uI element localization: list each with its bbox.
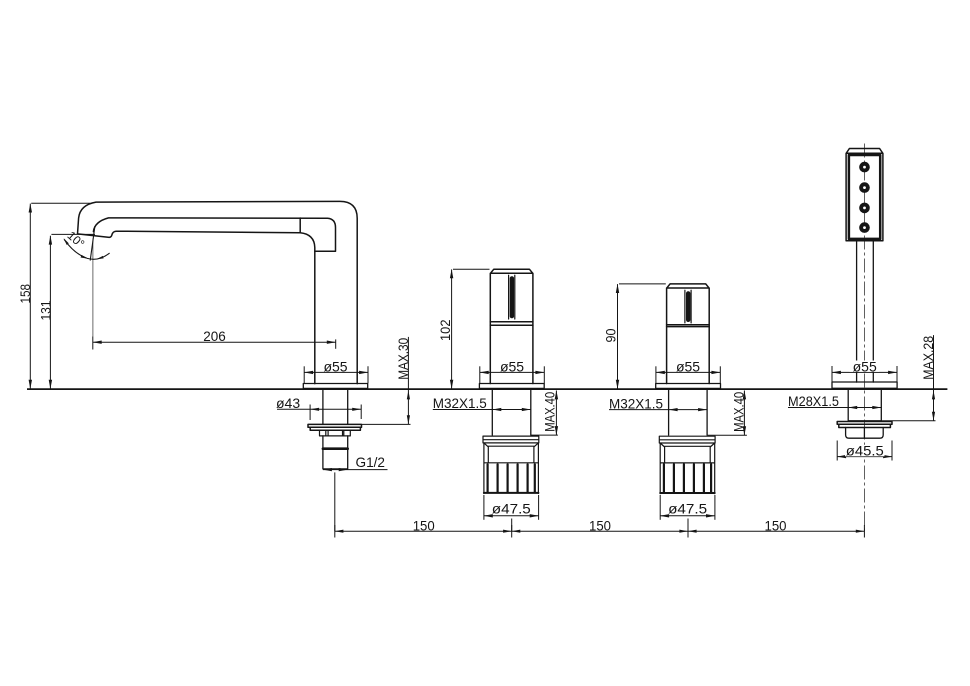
svg-text:150: 150 [765,517,787,533]
svg-text:ø55: ø55 [676,359,700,375]
svg-text:G1/2: G1/2 [356,455,385,470]
svg-text:102: 102 [437,319,453,341]
svg-text:MAX.28: MAX.28 [920,336,936,380]
svg-text:M32X1.5: M32X1.5 [609,395,663,411]
svg-text:158: 158 [17,284,33,304]
svg-text:M28X1.5: M28X1.5 [788,393,839,409]
svg-text:ø47.5: ø47.5 [668,501,707,517]
svg-text:150: 150 [413,517,435,533]
svg-text:MAX.40: MAX.40 [731,392,747,432]
svg-text:ø55: ø55 [323,359,347,375]
svg-text:M32X1.5: M32X1.5 [433,395,487,411]
svg-text:ø55: ø55 [853,359,877,375]
svg-text:ø55: ø55 [500,359,524,375]
svg-text:150: 150 [589,517,611,533]
svg-text:206: 206 [203,328,226,344]
svg-text:MAX.40: MAX.40 [541,392,557,432]
svg-text:10°: 10° [64,228,87,251]
svg-text:ø43: ø43 [276,395,300,411]
svg-text:ø45.5: ø45.5 [846,442,884,458]
svg-text:90: 90 [603,328,619,342]
svg-text:131: 131 [37,300,53,320]
svg-text:MAX.30: MAX.30 [395,338,411,380]
svg-text:ø47.5: ø47.5 [492,501,531,517]
